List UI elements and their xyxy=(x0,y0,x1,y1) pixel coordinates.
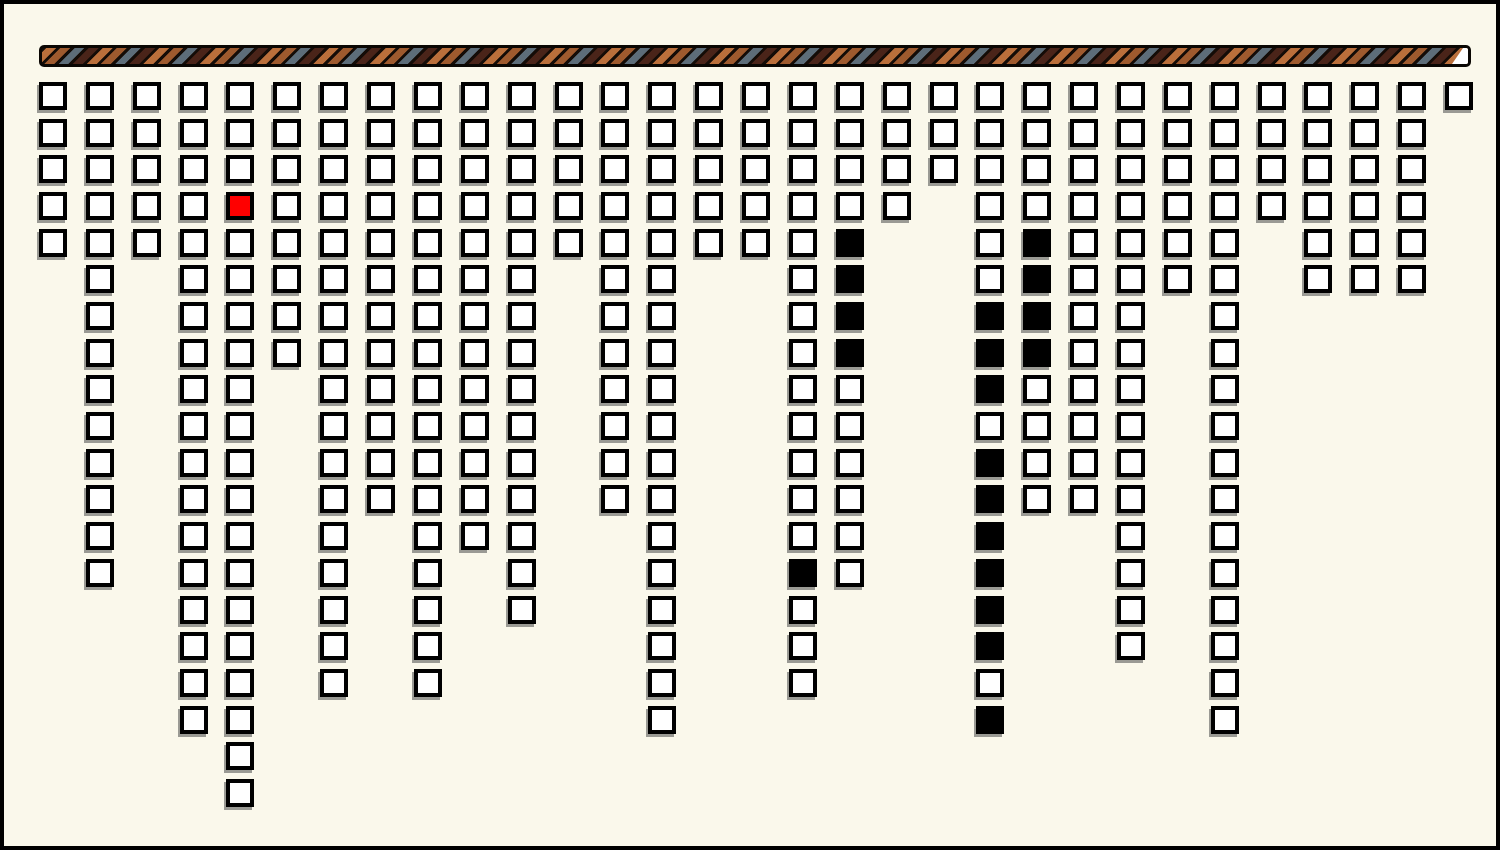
grid-cell-white[interactable] xyxy=(180,265,208,293)
grid-cell-white[interactable] xyxy=(414,596,442,624)
grid-cell-white[interactable] xyxy=(1304,229,1332,257)
grid-cell-white[interactable] xyxy=(1117,596,1145,624)
grid-cell-white[interactable] xyxy=(555,119,583,147)
grid-cell-white[interactable] xyxy=(1211,302,1239,330)
grid-cell-white[interactable] xyxy=(789,596,817,624)
grid-cell-white[interactable] xyxy=(226,155,254,183)
grid-cell-white[interactable] xyxy=(414,265,442,293)
grid-cell-white[interactable] xyxy=(320,559,348,587)
grid-cell-black[interactable] xyxy=(1023,302,1051,330)
grid-cell-white[interactable] xyxy=(1211,485,1239,513)
grid-cell-white[interactable] xyxy=(1117,485,1145,513)
grid-cell-white[interactable] xyxy=(1117,522,1145,550)
grid-cell-white[interactable] xyxy=(133,229,161,257)
grid-cell-black[interactable] xyxy=(976,632,1004,660)
grid-cell-white[interactable] xyxy=(180,559,208,587)
grid-cell-white[interactable] xyxy=(1070,302,1098,330)
grid-cell-white[interactable] xyxy=(1117,412,1145,440)
grid-cell-white[interactable] xyxy=(1117,302,1145,330)
grid-cell-white[interactable] xyxy=(414,522,442,550)
grid-cell-white[interactable] xyxy=(39,192,67,220)
grid-cell-white[interactable] xyxy=(789,192,817,220)
grid-cell-white[interactable] xyxy=(320,82,348,110)
grid-cell-white[interactable] xyxy=(39,82,67,110)
grid-cell-white[interactable] xyxy=(180,375,208,403)
grid-cell-white[interactable] xyxy=(648,632,676,660)
grid-cell-white[interactable] xyxy=(273,302,301,330)
grid-cell-black[interactable] xyxy=(976,449,1004,477)
grid-cell-black[interactable] xyxy=(1023,229,1051,257)
grid-cell-white[interactable] xyxy=(601,339,629,367)
grid-cell-white[interactable] xyxy=(1023,412,1051,440)
grid-cell-white[interactable] xyxy=(789,669,817,697)
grid-cell-white[interactable] xyxy=(414,485,442,513)
grid-cell-white[interactable] xyxy=(367,375,395,403)
grid-cell-white[interactable] xyxy=(1351,119,1379,147)
grid-cell-white[interactable] xyxy=(461,82,489,110)
grid-cell-white[interactable] xyxy=(1211,632,1239,660)
grid-cell-white[interactable] xyxy=(1398,82,1426,110)
grid-cell-white[interactable] xyxy=(1351,229,1379,257)
grid-cell-white[interactable] xyxy=(226,485,254,513)
grid-cell-white[interactable] xyxy=(1117,229,1145,257)
grid-cell-white[interactable] xyxy=(836,559,864,587)
grid-cell-white[interactable] xyxy=(180,596,208,624)
grid-cell-white[interactable] xyxy=(1164,119,1192,147)
grid-cell-black[interactable] xyxy=(836,339,864,367)
grid-cell-white[interactable] xyxy=(508,412,536,440)
grid-cell-red[interactable] xyxy=(226,192,254,220)
grid-cell-white[interactable] xyxy=(320,596,348,624)
grid-cell-white[interactable] xyxy=(226,339,254,367)
grid-cell-white[interactable] xyxy=(180,302,208,330)
grid-cell-white[interactable] xyxy=(86,522,114,550)
grid-cell-white[interactable] xyxy=(461,485,489,513)
grid-cell-white[interactable] xyxy=(1164,229,1192,257)
grid-cell-white[interactable] xyxy=(86,412,114,440)
grid-cell-white[interactable] xyxy=(86,449,114,477)
grid-cell-white[interactable] xyxy=(508,449,536,477)
grid-cell-white[interactable] xyxy=(1164,192,1192,220)
grid-cell-white[interactable] xyxy=(320,229,348,257)
grid-cell-white[interactable] xyxy=(1211,596,1239,624)
grid-cell-white[interactable] xyxy=(1258,119,1286,147)
grid-cell-white[interactable] xyxy=(508,265,536,293)
grid-cell-white[interactable] xyxy=(1023,155,1051,183)
grid-cell-white[interactable] xyxy=(976,192,1004,220)
grid-cell-white[interactable] xyxy=(133,155,161,183)
grid-cell-white[interactable] xyxy=(555,192,583,220)
grid-cell-white[interactable] xyxy=(601,485,629,513)
grid-cell-white[interactable] xyxy=(742,119,770,147)
grid-cell-white[interactable] xyxy=(601,302,629,330)
grid-cell-white[interactable] xyxy=(742,229,770,257)
grid-cell-white[interactable] xyxy=(930,82,958,110)
grid-cell-white[interactable] xyxy=(367,339,395,367)
grid-cell-white[interactable] xyxy=(883,119,911,147)
grid-cell-white[interactable] xyxy=(789,632,817,660)
grid-cell-white[interactable] xyxy=(1164,155,1192,183)
grid-cell-white[interactable] xyxy=(1398,265,1426,293)
grid-cell-white[interactable] xyxy=(180,155,208,183)
grid-cell-white[interactable] xyxy=(273,155,301,183)
grid-cell-white[interactable] xyxy=(367,412,395,440)
grid-cell-white[interactable] xyxy=(461,265,489,293)
grid-cell-white[interactable] xyxy=(976,669,1004,697)
grid-cell-white[interactable] xyxy=(1070,485,1098,513)
grid-cell-white[interactable] xyxy=(367,302,395,330)
grid-cell-white[interactable] xyxy=(1304,192,1332,220)
grid-cell-white[interactable] xyxy=(976,155,1004,183)
grid-cell-black[interactable] xyxy=(836,302,864,330)
grid-cell-white[interactable] xyxy=(320,449,348,477)
grid-cell-white[interactable] xyxy=(414,192,442,220)
grid-cell-white[interactable] xyxy=(226,449,254,477)
grid-cell-white[interactable] xyxy=(320,265,348,293)
grid-cell-white[interactable] xyxy=(320,155,348,183)
grid-cell-white[interactable] xyxy=(789,82,817,110)
grid-cell-white[interactable] xyxy=(180,339,208,367)
grid-cell-black[interactable] xyxy=(1023,339,1051,367)
grid-cell-white[interactable] xyxy=(695,119,723,147)
grid-cell-white[interactable] xyxy=(648,82,676,110)
grid-cell-white[interactable] xyxy=(836,449,864,477)
grid-cell-white[interactable] xyxy=(367,119,395,147)
grid-cell-white[interactable] xyxy=(789,485,817,513)
grid-cell-white[interactable] xyxy=(86,265,114,293)
grid-cell-white[interactable] xyxy=(367,192,395,220)
grid-cell-white[interactable] xyxy=(320,669,348,697)
grid-cell-white[interactable] xyxy=(1211,119,1239,147)
grid-cell-white[interactable] xyxy=(226,706,254,734)
grid-cell-white[interactable] xyxy=(836,485,864,513)
grid-cell-white[interactable] xyxy=(414,412,442,440)
grid-cell-white[interactable] xyxy=(226,82,254,110)
grid-cell-white[interactable] xyxy=(1211,339,1239,367)
grid-cell-white[interactable] xyxy=(976,265,1004,293)
grid-cell-white[interactable] xyxy=(180,632,208,660)
grid-cell-white[interactable] xyxy=(976,412,1004,440)
grid-cell-white[interactable] xyxy=(1351,155,1379,183)
grid-cell-white[interactable] xyxy=(1070,155,1098,183)
grid-cell-white[interactable] xyxy=(789,375,817,403)
grid-cell-white[interactable] xyxy=(648,669,676,697)
grid-cell-white[interactable] xyxy=(273,265,301,293)
grid-cell-white[interactable] xyxy=(601,192,629,220)
grid-cell-white[interactable] xyxy=(742,155,770,183)
grid-cell-white[interactable] xyxy=(1117,375,1145,403)
grid-cell-white[interactable] xyxy=(648,265,676,293)
grid-cell-white[interactable] xyxy=(836,82,864,110)
grid-cell-white[interactable] xyxy=(133,119,161,147)
grid-cell-white[interactable] xyxy=(648,559,676,587)
grid-cell-white[interactable] xyxy=(273,339,301,367)
grid-cell-white[interactable] xyxy=(1398,155,1426,183)
grid-cell-white[interactable] xyxy=(1211,412,1239,440)
grid-cell-white[interactable] xyxy=(836,522,864,550)
grid-cell-black[interactable] xyxy=(836,229,864,257)
grid-cell-white[interactable] xyxy=(226,669,254,697)
grid-cell-white[interactable] xyxy=(695,82,723,110)
grid-cell-white[interactable] xyxy=(226,559,254,587)
grid-cell-white[interactable] xyxy=(648,192,676,220)
grid-cell-white[interactable] xyxy=(133,192,161,220)
grid-cell-white[interactable] xyxy=(226,412,254,440)
grid-cell-white[interactable] xyxy=(1304,82,1332,110)
grid-cell-white[interactable] xyxy=(1023,82,1051,110)
grid-cell-white[interactable] xyxy=(648,522,676,550)
grid-cell-white[interactable] xyxy=(273,229,301,257)
grid-cell-white[interactable] xyxy=(320,485,348,513)
grid-cell-white[interactable] xyxy=(1211,192,1239,220)
grid-cell-white[interactable] xyxy=(601,82,629,110)
grid-cell-white[interactable] xyxy=(1211,229,1239,257)
grid-cell-white[interactable] xyxy=(648,412,676,440)
grid-cell-white[interactable] xyxy=(789,265,817,293)
grid-cell-black[interactable] xyxy=(836,265,864,293)
grid-cell-white[interactable] xyxy=(226,265,254,293)
grid-cell-white[interactable] xyxy=(1304,265,1332,293)
grid-cell-white[interactable] xyxy=(39,119,67,147)
grid-cell-white[interactable] xyxy=(461,229,489,257)
grid-cell-white[interactable] xyxy=(414,375,442,403)
grid-cell-white[interactable] xyxy=(180,82,208,110)
grid-cell-white[interactable] xyxy=(508,339,536,367)
grid-cell-white[interactable] xyxy=(320,339,348,367)
grid-cell-white[interactable] xyxy=(695,192,723,220)
grid-cell-white[interactable] xyxy=(1211,375,1239,403)
grid-cell-white[interactable] xyxy=(461,339,489,367)
grid-cell-white[interactable] xyxy=(367,485,395,513)
grid-cell-white[interactable] xyxy=(695,155,723,183)
grid-cell-white[interactable] xyxy=(86,339,114,367)
grid-cell-white[interactable] xyxy=(789,119,817,147)
grid-cell-white[interactable] xyxy=(1351,82,1379,110)
grid-cell-white[interactable] xyxy=(1023,375,1051,403)
grid-cell-white[interactable] xyxy=(180,449,208,477)
grid-cell-white[interactable] xyxy=(1117,449,1145,477)
grid-cell-white[interactable] xyxy=(133,82,161,110)
grid-cell-white[interactable] xyxy=(461,449,489,477)
grid-cell-white[interactable] xyxy=(1117,265,1145,293)
grid-cell-white[interactable] xyxy=(508,192,536,220)
grid-cell-white[interactable] xyxy=(836,192,864,220)
grid-cell-white[interactable] xyxy=(508,375,536,403)
grid-cell-white[interactable] xyxy=(1211,669,1239,697)
grid-cell-white[interactable] xyxy=(273,119,301,147)
grid-cell-white[interactable] xyxy=(273,82,301,110)
grid-cell-white[interactable] xyxy=(86,82,114,110)
grid-cell-white[interactable] xyxy=(226,632,254,660)
grid-cell-black[interactable] xyxy=(976,596,1004,624)
grid-cell-white[interactable] xyxy=(414,119,442,147)
grid-cell-white[interactable] xyxy=(461,119,489,147)
grid-cell-white[interactable] xyxy=(1211,82,1239,110)
grid-cell-white[interactable] xyxy=(1258,155,1286,183)
grid-cell-white[interactable] xyxy=(1211,449,1239,477)
grid-cell-white[interactable] xyxy=(1211,522,1239,550)
grid-cell-white[interactable] xyxy=(648,302,676,330)
grid-cell-white[interactable] xyxy=(1398,229,1426,257)
grid-cell-white[interactable] xyxy=(367,155,395,183)
grid-cell-white[interactable] xyxy=(86,119,114,147)
grid-cell-white[interactable] xyxy=(836,119,864,147)
grid-cell-white[interactable] xyxy=(320,632,348,660)
grid-cell-white[interactable] xyxy=(1351,265,1379,293)
grid-cell-white[interactable] xyxy=(86,559,114,587)
grid-cell-white[interactable] xyxy=(508,155,536,183)
grid-cell-white[interactable] xyxy=(1211,265,1239,293)
grid-cell-white[interactable] xyxy=(414,632,442,660)
grid-cell-white[interactable] xyxy=(601,449,629,477)
grid-cell-white[interactable] xyxy=(180,669,208,697)
grid-cell-white[interactable] xyxy=(1070,375,1098,403)
grid-cell-white[interactable] xyxy=(555,155,583,183)
grid-cell-white[interactable] xyxy=(1070,229,1098,257)
grid-cell-white[interactable] xyxy=(1398,192,1426,220)
grid-cell-white[interactable] xyxy=(601,229,629,257)
grid-cell-white[interactable] xyxy=(1070,192,1098,220)
grid-cell-white[interactable] xyxy=(836,412,864,440)
grid-cell-white[interactable] xyxy=(1070,82,1098,110)
grid-cell-white[interactable] xyxy=(555,229,583,257)
grid-cell-white[interactable] xyxy=(461,192,489,220)
grid-cell-white[interactable] xyxy=(414,155,442,183)
grid-cell-white[interactable] xyxy=(789,412,817,440)
grid-cell-white[interactable] xyxy=(1258,82,1286,110)
grid-cell-white[interactable] xyxy=(695,229,723,257)
grid-cell-white[interactable] xyxy=(555,82,583,110)
grid-cell-white[interactable] xyxy=(789,339,817,367)
grid-cell-white[interactable] xyxy=(180,706,208,734)
grid-cell-white[interactable] xyxy=(930,155,958,183)
grid-cell-black[interactable] xyxy=(976,559,1004,587)
grid-cell-white[interactable] xyxy=(180,119,208,147)
grid-cell-white[interactable] xyxy=(39,155,67,183)
grid-cell-white[interactable] xyxy=(789,302,817,330)
grid-cell-white[interactable] xyxy=(883,82,911,110)
grid-cell-white[interactable] xyxy=(226,302,254,330)
grid-cell-white[interactable] xyxy=(461,375,489,403)
grid-cell-white[interactable] xyxy=(883,192,911,220)
grid-cell-white[interactable] xyxy=(648,375,676,403)
grid-cell-white[interactable] xyxy=(1351,192,1379,220)
grid-cell-white[interactable] xyxy=(508,229,536,257)
grid-cell-white[interactable] xyxy=(320,302,348,330)
grid-cell-white[interactable] xyxy=(648,485,676,513)
grid-cell-white[interactable] xyxy=(508,522,536,550)
grid-cell-white[interactable] xyxy=(39,229,67,257)
grid-cell-white[interactable] xyxy=(976,82,1004,110)
grid-cell-white[interactable] xyxy=(367,82,395,110)
grid-cell-white[interactable] xyxy=(836,375,864,403)
grid-cell-white[interactable] xyxy=(414,82,442,110)
grid-cell-white[interactable] xyxy=(1258,192,1286,220)
grid-cell-white[interactable] xyxy=(601,265,629,293)
grid-cell-white[interactable] xyxy=(320,119,348,147)
grid-cell-white[interactable] xyxy=(86,155,114,183)
grid-cell-white[interactable] xyxy=(1117,155,1145,183)
grid-cell-white[interactable] xyxy=(86,192,114,220)
grid-cell-white[interactable] xyxy=(508,559,536,587)
grid-cell-white[interactable] xyxy=(883,155,911,183)
grid-cell-black[interactable] xyxy=(976,522,1004,550)
grid-cell-white[interactable] xyxy=(601,412,629,440)
grid-cell-white[interactable] xyxy=(226,742,254,770)
grid-cell-white[interactable] xyxy=(601,375,629,403)
grid-cell-white[interactable] xyxy=(930,119,958,147)
grid-cell-white[interactable] xyxy=(1070,339,1098,367)
grid-cell-white[interactable] xyxy=(367,265,395,293)
grid-cell-white[interactable] xyxy=(648,229,676,257)
grid-cell-white[interactable] xyxy=(1164,265,1192,293)
grid-cell-white[interactable] xyxy=(1211,155,1239,183)
grid-cell-white[interactable] xyxy=(789,229,817,257)
grid-cell-white[interactable] xyxy=(648,449,676,477)
grid-cell-white[interactable] xyxy=(742,82,770,110)
grid-cell-white[interactable] xyxy=(226,522,254,550)
grid-cell-white[interactable] xyxy=(226,779,254,807)
grid-cell-white[interactable] xyxy=(226,229,254,257)
grid-cell-white[interactable] xyxy=(1023,119,1051,147)
grid-cell-white[interactable] xyxy=(648,119,676,147)
grid-cell-white[interactable] xyxy=(414,339,442,367)
grid-cell-white[interactable] xyxy=(1070,449,1098,477)
grid-cell-white[interactable] xyxy=(648,596,676,624)
grid-cell-white[interactable] xyxy=(789,449,817,477)
grid-cell-white[interactable] xyxy=(1117,192,1145,220)
grid-cell-white[interactable] xyxy=(1023,449,1051,477)
grid-cell-black[interactable] xyxy=(976,706,1004,734)
grid-cell-white[interactable] xyxy=(836,155,864,183)
grid-cell-white[interactable] xyxy=(742,192,770,220)
grid-cell-white[interactable] xyxy=(1164,82,1192,110)
grid-cell-white[interactable] xyxy=(508,485,536,513)
grid-cell-white[interactable] xyxy=(226,596,254,624)
grid-cell-white[interactable] xyxy=(1023,485,1051,513)
grid-cell-white[interactable] xyxy=(414,669,442,697)
grid-cell-white[interactable] xyxy=(1211,559,1239,587)
grid-cell-white[interactable] xyxy=(461,522,489,550)
grid-cell-white[interactable] xyxy=(1117,119,1145,147)
grid-cell-white[interactable] xyxy=(180,412,208,440)
grid-cell-white[interactable] xyxy=(601,119,629,147)
grid-cell-white[interactable] xyxy=(976,229,1004,257)
grid-cell-white[interactable] xyxy=(1117,82,1145,110)
grid-cell-white[interactable] xyxy=(601,155,629,183)
grid-cell-white[interactable] xyxy=(1070,265,1098,293)
grid-cell-white[interactable] xyxy=(508,82,536,110)
grid-cell-white[interactable] xyxy=(508,302,536,330)
grid-cell-white[interactable] xyxy=(508,119,536,147)
grid-cell-white[interactable] xyxy=(1211,706,1239,734)
grid-cell-white[interactable] xyxy=(1023,192,1051,220)
grid-cell-white[interactable] xyxy=(414,302,442,330)
grid-cell-white[interactable] xyxy=(789,522,817,550)
grid-cell-white[interactable] xyxy=(86,375,114,403)
grid-cell-white[interactable] xyxy=(320,412,348,440)
grid-cell-white[interactable] xyxy=(1117,559,1145,587)
grid-cell-white[interactable] xyxy=(1304,119,1332,147)
grid-cell-white[interactable] xyxy=(414,449,442,477)
grid-cell-black[interactable] xyxy=(976,339,1004,367)
grid-cell-white[interactable] xyxy=(86,302,114,330)
grid-cell-white[interactable] xyxy=(320,522,348,550)
grid-cell-black[interactable] xyxy=(1023,265,1051,293)
grid-cell-white[interactable] xyxy=(1304,155,1332,183)
grid-cell-white[interactable] xyxy=(180,522,208,550)
grid-cell-white[interactable] xyxy=(1117,339,1145,367)
